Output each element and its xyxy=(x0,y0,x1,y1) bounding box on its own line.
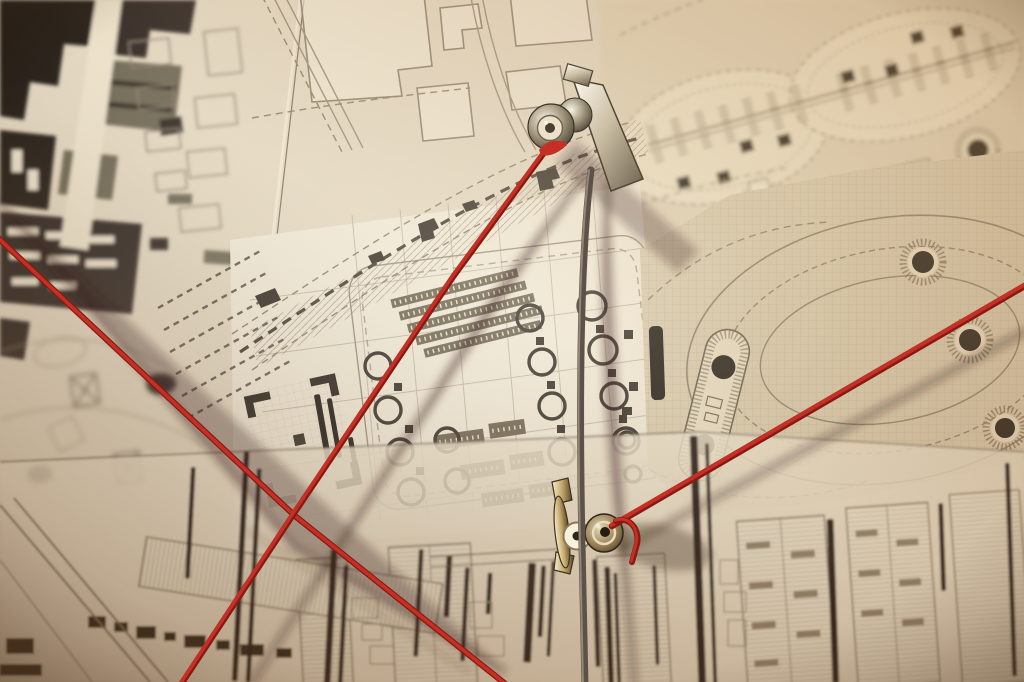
vignette xyxy=(0,0,1024,682)
site-plan-scene xyxy=(0,0,1024,682)
wall-map-photo xyxy=(0,0,1024,682)
